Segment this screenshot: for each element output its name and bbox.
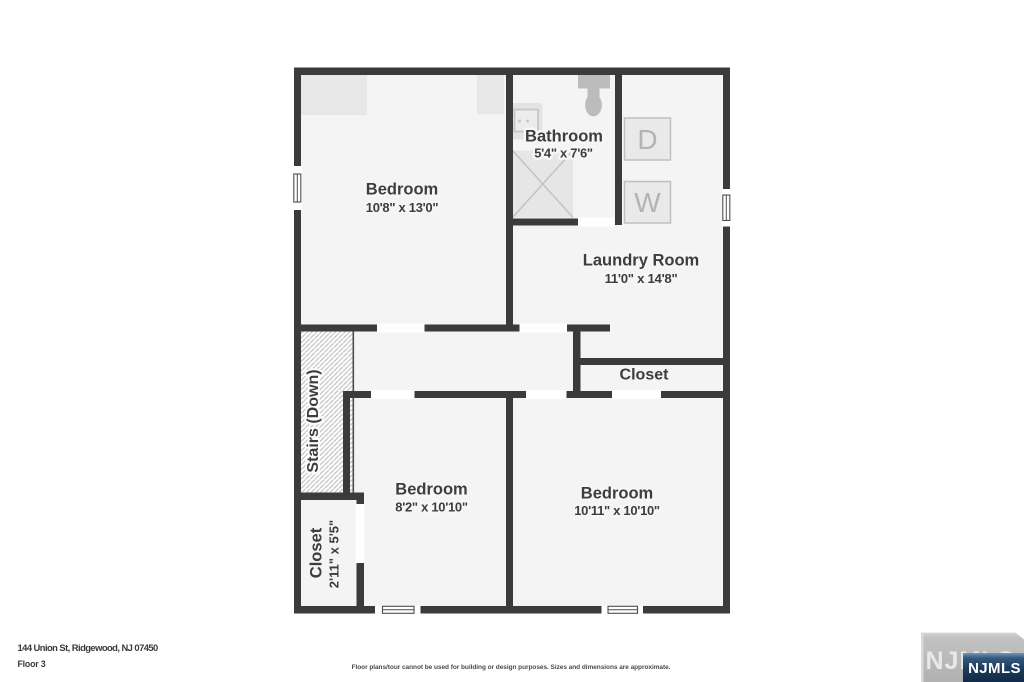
svg-text:5'4" x 7'6": 5'4" x 7'6" xyxy=(534,146,593,161)
svg-text:Floor plans/tour cannot be use: Floor plans/tour cannot be used for buil… xyxy=(352,664,671,671)
svg-text:10'8" x 13'0": 10'8" x 13'0" xyxy=(366,200,439,215)
svg-text:NJMLS: NJMLS xyxy=(968,660,1021,677)
svg-text:Floor 3: Floor 3 xyxy=(18,659,46,669)
svg-text:8'2" x 10'10": 8'2" x 10'10" xyxy=(395,500,468,515)
svg-text:144 Union St, Ridgewood, NJ 07: 144 Union St, Ridgewood, NJ 07450 xyxy=(18,642,159,653)
svg-text:Bedroom: Bedroom xyxy=(581,485,653,503)
svg-text:Stairs (Down): Stairs (Down) xyxy=(305,369,322,472)
svg-text:Bathroom: Bathroom xyxy=(525,128,603,146)
svg-text:Closet: Closet xyxy=(620,367,670,384)
svg-text:D: D xyxy=(637,124,657,155)
svg-text:Bedroom: Bedroom xyxy=(366,181,438,199)
svg-text:11'0" x 14'8": 11'0" x 14'8" xyxy=(605,271,678,286)
svg-text:10'11" x 10'10": 10'11" x 10'10" xyxy=(574,503,660,518)
svg-text:2'11" x 5'5": 2'11" x 5'5" xyxy=(327,520,342,588)
svg-text:Closet: Closet xyxy=(308,527,326,578)
svg-text:Bedroom: Bedroom xyxy=(395,481,467,499)
svg-text:W: W xyxy=(634,187,661,218)
svg-text:Laundry Room: Laundry Room xyxy=(583,252,699,270)
